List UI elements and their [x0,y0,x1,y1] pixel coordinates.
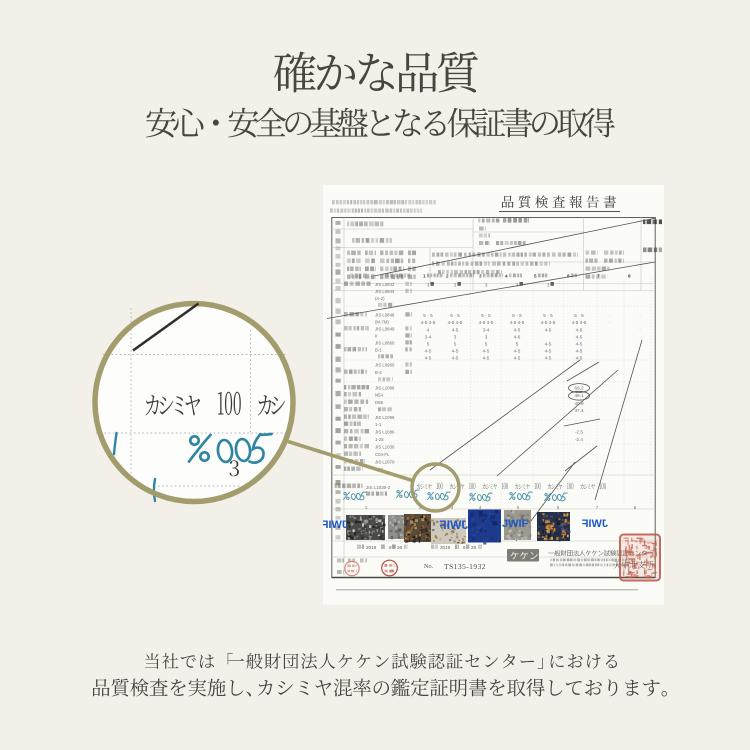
svg-text:5: 5 [485,342,488,347]
svg-text:5: 5 [427,342,430,347]
svg-text:JIS L0842: JIS L0842 [375,282,395,287]
svg-text:2: 2 [446,274,449,279]
svg-text:5 · 5: 5 · 5 [543,313,553,318]
svg-text:4-5 4-5: 4-5 4-5 [572,320,587,325]
svg-text:B-2: B-2 [375,370,382,375]
svg-text:6: 6 [567,274,570,279]
svg-text:26: 26 [397,545,403,550]
svg-text:JWIF: JWIF [439,518,468,532]
svg-text:II: II [375,333,377,338]
svg-text:1: 1 [423,274,426,279]
svg-text:·: · [639,327,641,332]
svg-text:4: 4 [427,328,430,333]
svg-text:(M-7M): (M-7M) [375,319,389,324]
svg-text:JIS L1096: JIS L1096 [375,385,395,390]
svg-text:JIS L0848: JIS L0848 [375,312,395,317]
svg-text:JIS L0844: JIS L0844 [375,289,395,294]
svg-text:5: 5 [516,342,519,347]
svg-text:8: 8 [389,545,392,550]
svg-text:4-5: 4-5 [545,342,552,347]
svg-text:4-5: 4-5 [514,356,521,361]
svg-text:2018: 2018 [366,545,377,550]
svg-text:1-1: 1-1 [375,422,382,427]
svg-text:4-5: 4-5 [425,356,432,361]
svg-text:4: 4 [505,274,508,279]
svg-text:4-5: 4-5 [545,349,552,354]
svg-text:49.1: 49.1 [574,393,584,398]
svg-text:·: · [609,320,611,325]
svg-text:JIS L1030: JIS L1030 [375,444,395,449]
svg-text:-2.5: -2.5 [575,430,583,435]
svg-text:JIS L1070: JIS L1070 [375,459,395,464]
svg-text:4-5 4-5: 4-5 4-5 [541,320,556,325]
svg-text:3: 3 [516,283,519,288]
svg-text:4-5: 4-5 [576,328,583,333]
svg-text:8: 8 [628,274,631,279]
svg-text:28: 28 [471,545,477,550]
svg-text:3: 3 [454,283,457,288]
svg-text:4-5: 4-5 [514,349,521,354]
svg-text:5 · 5: 5 · 5 [574,313,584,318]
svg-text:5 · 5: 5 · 5 [450,313,460,318]
svg-text:3: 3 [547,283,550,288]
svg-text:4-5: 4-5 [452,328,459,333]
svg-text:7: 7 [597,274,600,279]
svg-text:5 · 5: 5 · 5 [481,313,491,318]
svg-text:3: 3 [427,283,430,288]
svg-text:3-4: 3-4 [483,328,490,333]
svg-text:·: · [609,313,611,318]
svg-text:N5A: N5A [375,392,383,397]
svg-text:3: 3 [479,274,482,279]
svg-text:4-5: 4-5 [452,356,459,361]
svg-text:JIS L0960: JIS L0960 [375,362,395,367]
svg-text:4-5 4-5: 4-5 4-5 [421,320,436,325]
svg-text:37.4: 37.4 [574,408,584,413]
svg-text:3: 3 [454,335,457,340]
svg-text:4-5 4-5: 4-5 4-5 [510,320,525,325]
svg-text:4-6: 4-6 [514,335,521,340]
svg-text:JIS L1086: JIS L1086 [375,429,395,434]
svg-text:4-5: 4-5 [545,356,552,361]
svg-text:3: 3 [485,283,488,288]
svg-text:JIS L0860: JIS L0860 [375,340,395,345]
svg-text:4-5: 4-5 [452,349,459,354]
svg-text:66.2: 66.2 [574,386,584,391]
svg-text:4-5: 4-5 [576,335,583,340]
svg-text:-2.4: -2.4 [575,437,583,442]
svg-text:4-5: 4-5 [576,356,583,361]
svg-text:B-1: B-1 [375,347,382,352]
svg-text:TS135-1932: TS135-1932 [444,562,486,571]
svg-text:JIS L1030-2: JIS L1030-2 [366,485,391,490]
svg-text:JWIF: JWIF [502,518,529,530]
svg-text:JIS L1096: JIS L1096 [375,415,395,420]
svg-text:5 · 5: 5 · 5 [512,313,522,318]
svg-text:5 · 5: 5 · 5 [423,313,433,318]
svg-text:8: 8 [463,545,466,550]
svg-text:C04-FL: C04-FL [375,452,390,457]
svg-text:D5E: D5E [375,400,383,405]
svg-text:JWIF: JWIF [581,518,608,530]
svg-text:5: 5 [534,274,537,279]
svg-text:2019: 2019 [440,545,451,550]
svg-text:4-5: 4-5 [576,349,583,354]
svg-text:4-5 4-5: 4-5 4-5 [448,320,463,325]
svg-text:4-5: 4-5 [483,356,490,361]
svg-text:4-5: 4-5 [425,349,432,354]
svg-text:JWIF: JWIF [321,519,348,531]
svg-text:No.: No. [424,563,434,570]
svg-text:3-4: 3-4 [425,335,432,340]
svg-text:1-25: 1-25 [375,437,384,442]
svg-text:3: 3 [485,335,488,340]
svg-text:4-5: 4-5 [545,328,552,333]
svg-text:4-5 4-5: 4-5 4-5 [479,320,494,325]
svg-text:4-5: 4-5 [576,342,583,347]
svg-text:5: 5 [454,342,457,347]
svg-text:(A-2): (A-2) [375,296,385,301]
svg-text:JIS L0849: JIS L0849 [375,326,395,331]
svg-text:4-5: 4-5 [514,328,521,333]
svg-text:·: · [639,313,641,318]
svg-text:4-5: 4-5 [483,349,490,354]
